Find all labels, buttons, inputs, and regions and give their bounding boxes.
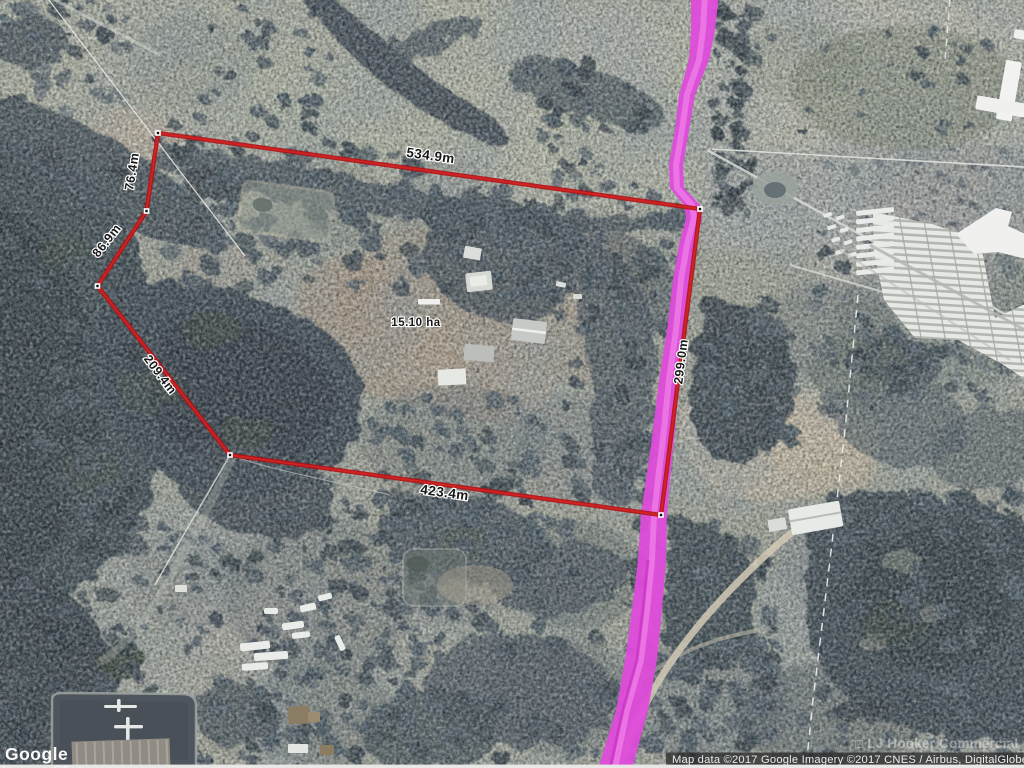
svg-text:Map data ©2017 Google Imagery: Map data ©2017 Google Imagery ©2017 CNES…	[672, 754, 1024, 766]
svg-text:Google: Google	[5, 744, 68, 764]
svg-text:Imagery ©2: Imagery ©2	[2, 763, 69, 768]
svg-text:□ LJ Hooker Commercial: □ LJ Hooker Commercial	[855, 736, 1018, 751]
svg-text:15.10 ha: 15.10 ha	[391, 317, 440, 329]
